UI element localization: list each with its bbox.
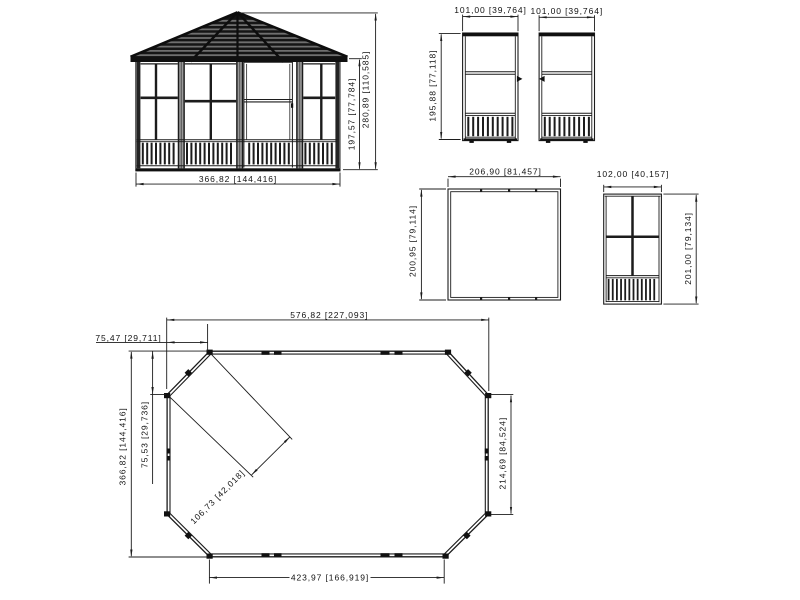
svg-text:214,69 [84,524]: 214,69 [84,524] [497, 417, 507, 490]
svg-text:197,57 [77,784]: 197,57 [77,784] [346, 78, 356, 151]
svg-text:280,89 [110,585]: 280,89 [110,585] [360, 51, 370, 129]
svg-text:423,97 [166,919]: 423,97 [166,919] [291, 572, 369, 582]
svg-text:195,88 [77,118]: 195,88 [77,118] [428, 50, 438, 122]
svg-text:366,82 [144,416]: 366,82 [144,416] [118, 407, 128, 485]
svg-text:101,00 [39,764]: 101,00 [39,764] [454, 5, 527, 15]
svg-text:101,00 [39,764]: 101,00 [39,764] [531, 6, 604, 16]
svg-text:206,90 [81,457]: 206,90 [81,457] [469, 166, 542, 176]
svg-text:200,95 [79,114]: 200,95 [79,114] [408, 205, 418, 277]
svg-text:75,53 [29,736]: 75,53 [29,736] [140, 401, 150, 468]
svg-text:576,82 [227,093]: 576,82 [227,093] [290, 310, 368, 320]
svg-text:201,00 [79,134]: 201,00 [79,134] [683, 212, 693, 285]
svg-text:366,82 [144,416]: 366,82 [144,416] [199, 174, 277, 184]
svg-text:75,47 [29,711]: 75,47 [29,711] [95, 333, 161, 343]
svg-text:106,73 [42,018]: 106,73 [42,018] [188, 468, 246, 526]
svg-text:102,00 [40,157]: 102,00 [40,157] [597, 169, 670, 179]
